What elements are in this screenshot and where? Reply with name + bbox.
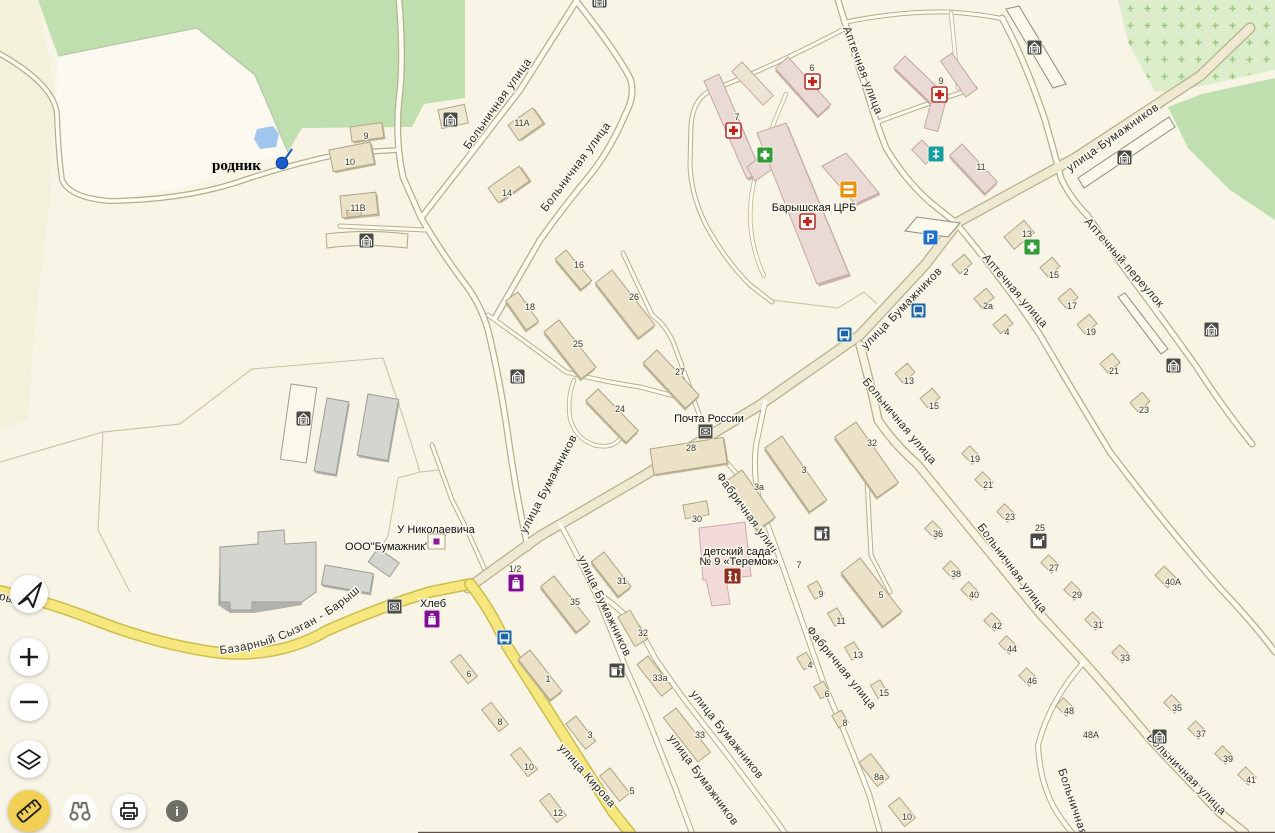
- svg-text:39: 39: [1223, 754, 1233, 764]
- svg-text:27: 27: [1049, 563, 1059, 573]
- svg-text:8а: 8а: [874, 772, 884, 782]
- svg-text:8: 8: [497, 717, 502, 727]
- svg-text:родник: родник: [212, 158, 261, 174]
- svg-text:15: 15: [929, 401, 939, 411]
- svg-text:19: 19: [1086, 327, 1096, 337]
- svg-text:12: 12: [553, 808, 563, 818]
- svg-text:13: 13: [1022, 229, 1032, 239]
- svg-text:23: 23: [1005, 512, 1015, 522]
- svg-text:3а: 3а: [754, 482, 764, 492]
- svg-text:33а: 33а: [652, 673, 667, 683]
- svg-text:1: 1: [545, 674, 550, 684]
- svg-text:35: 35: [570, 597, 580, 607]
- svg-text:24: 24: [615, 404, 625, 414]
- svg-text:44: 44: [1007, 644, 1017, 654]
- svg-text:10: 10: [524, 762, 534, 772]
- svg-text:7: 7: [796, 560, 801, 570]
- svg-text:2: 2: [963, 267, 968, 277]
- svg-text:14: 14: [502, 188, 512, 198]
- svg-text:38: 38: [951, 569, 961, 579]
- svg-text:48А: 48А: [1083, 730, 1099, 740]
- svg-text:37: 37: [1196, 729, 1206, 739]
- svg-text:25: 25: [573, 339, 583, 349]
- svg-text:35: 35: [1172, 703, 1182, 713]
- svg-text:15: 15: [879, 688, 889, 698]
- svg-text:Почта России: Почта России: [674, 413, 744, 425]
- svg-text:1/2: 1/2: [509, 564, 522, 574]
- svg-text:42: 42: [992, 621, 1002, 631]
- svg-text:26: 26: [629, 292, 639, 302]
- svg-text:13: 13: [904, 376, 914, 386]
- svg-text:4: 4: [807, 660, 812, 670]
- svg-text:6: 6: [824, 689, 829, 699]
- svg-text:8: 8: [842, 718, 847, 728]
- svg-text:21: 21: [983, 480, 993, 490]
- svg-text:11: 11: [976, 162, 985, 172]
- svg-text:23: 23: [1139, 405, 1149, 415]
- svg-text:i: i: [175, 804, 179, 819]
- svg-text:11: 11: [836, 616, 845, 626]
- svg-text:15: 15: [1049, 270, 1059, 280]
- svg-text:7: 7: [734, 112, 739, 122]
- svg-text:32: 32: [638, 628, 648, 638]
- svg-text:9: 9: [938, 76, 943, 86]
- svg-text:31: 31: [617, 576, 627, 586]
- svg-text:48: 48: [1064, 706, 1074, 716]
- svg-text:10: 10: [345, 157, 355, 167]
- svg-text:11А: 11А: [514, 118, 529, 128]
- svg-text:40А: 40А: [1165, 577, 1181, 587]
- svg-text:33: 33: [1120, 653, 1130, 663]
- svg-text:5: 5: [878, 590, 883, 600]
- svg-text:33: 33: [695, 730, 705, 740]
- svg-text:25: 25: [1035, 523, 1045, 533]
- svg-text:30: 30: [692, 514, 702, 524]
- svg-text:18: 18: [525, 302, 535, 312]
- svg-text:29: 29: [1072, 590, 1082, 600]
- svg-text:31: 31: [1093, 620, 1103, 630]
- svg-text:40: 40: [969, 590, 979, 600]
- svg-text:13: 13: [853, 650, 863, 660]
- svg-text:3: 3: [587, 730, 592, 740]
- svg-text:19: 19: [970, 454, 980, 464]
- svg-text:9: 9: [818, 589, 823, 599]
- svg-text:46: 46: [1027, 676, 1037, 686]
- svg-text:5: 5: [629, 786, 634, 796]
- svg-text:17: 17: [1067, 301, 1077, 311]
- svg-text:ООО"Бумажник": ООО"Бумажник": [345, 541, 429, 553]
- svg-text:11В: 11В: [350, 203, 365, 213]
- svg-text:41: 41: [1246, 775, 1256, 785]
- svg-text:27: 27: [675, 367, 685, 377]
- svg-text:Барышская ЦРБ: Барышская ЦРБ: [772, 202, 857, 214]
- svg-text:4: 4: [1004, 327, 1009, 337]
- svg-text:Хлеб: Хлеб: [420, 598, 446, 610]
- svg-text:21: 21: [1109, 366, 1119, 376]
- svg-text:2а: 2а: [983, 301, 993, 311]
- svg-text:3: 3: [801, 465, 806, 475]
- svg-text:32: 32: [867, 438, 877, 448]
- svg-text:6: 6: [809, 63, 814, 73]
- svg-text:9: 9: [363, 131, 368, 141]
- svg-text:36: 36: [933, 529, 943, 539]
- svg-text:16: 16: [574, 260, 584, 270]
- svg-text:6: 6: [466, 669, 471, 679]
- svg-text:10: 10: [902, 812, 912, 822]
- svg-text:№ 9 «Теремок»: № 9 «Теремок»: [699, 556, 778, 568]
- svg-text:28: 28: [686, 443, 696, 453]
